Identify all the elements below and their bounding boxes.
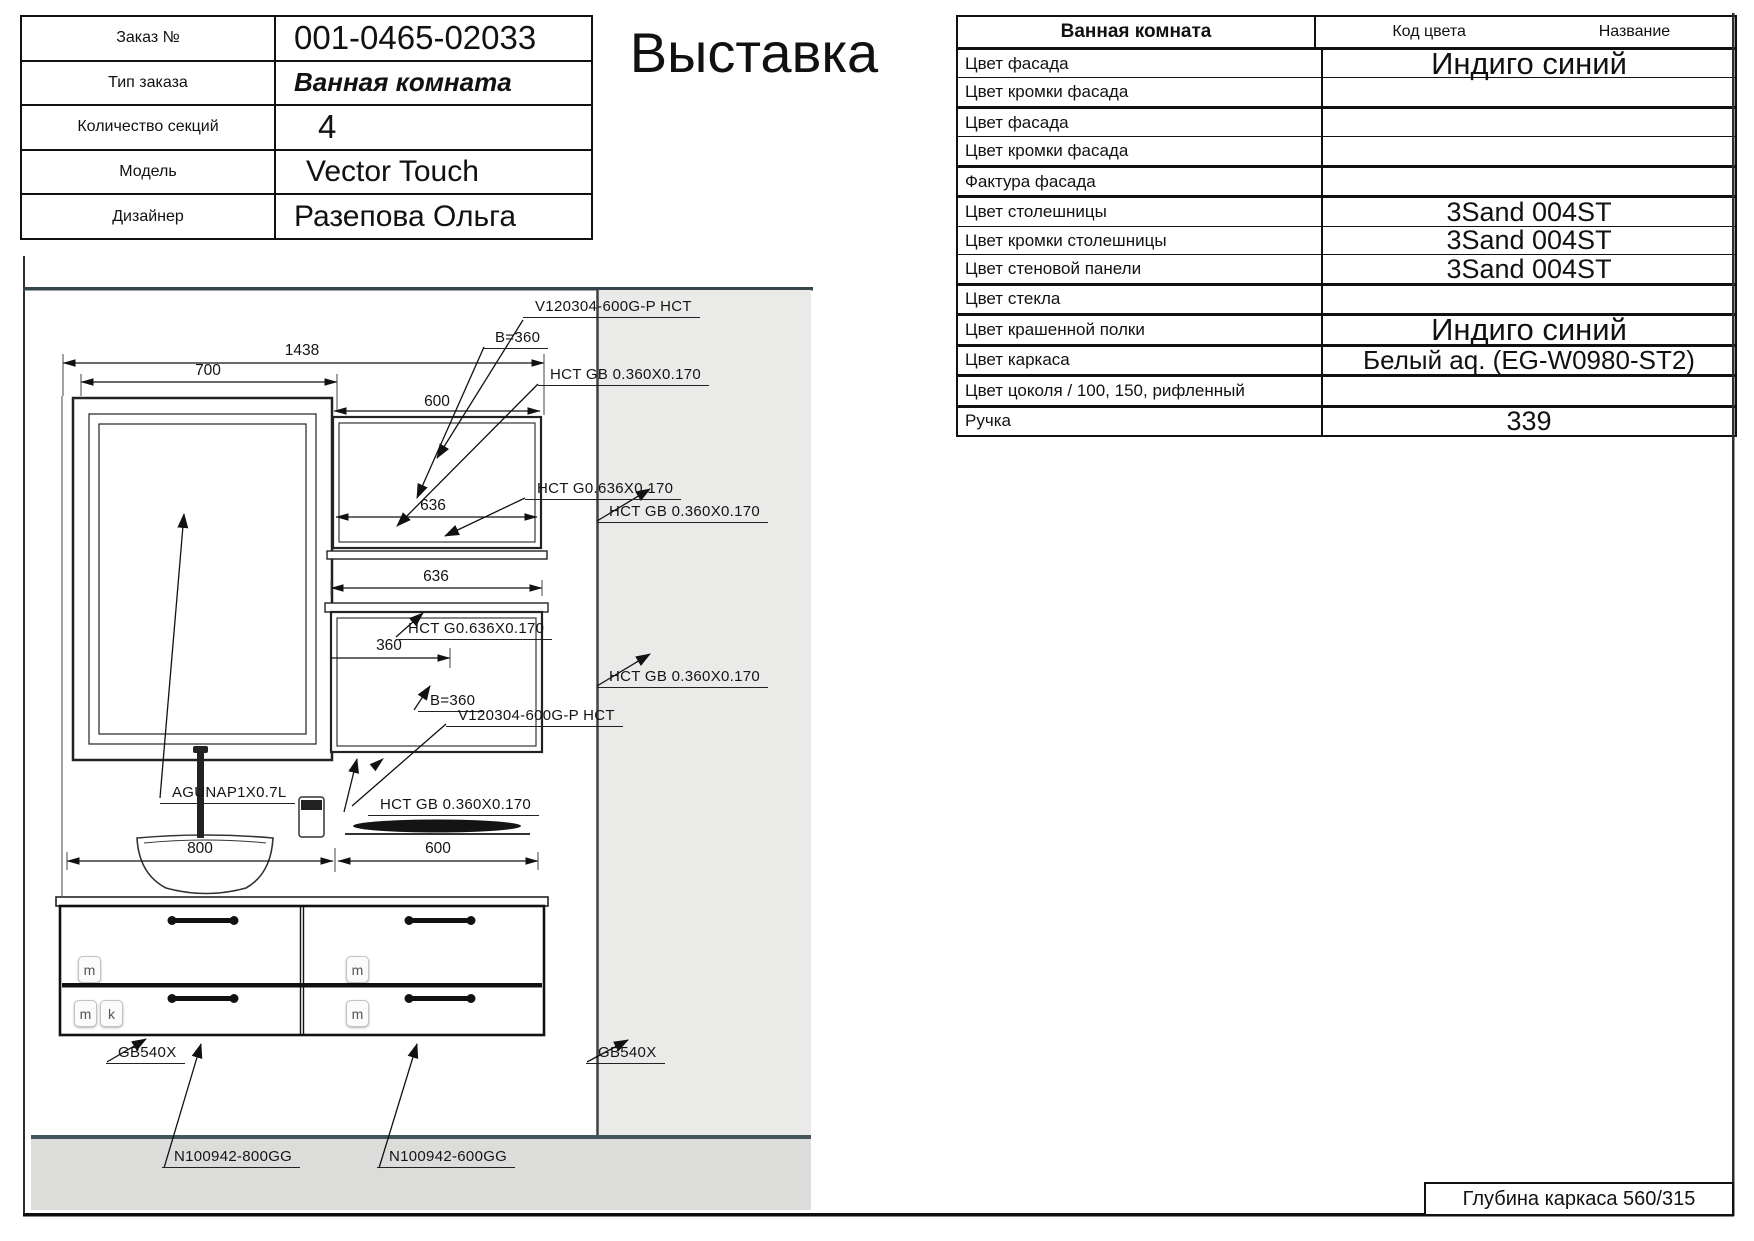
part-label-v120304-top: V120304-600G-P HCT <box>523 298 700 318</box>
drawing-linework <box>0 0 1754 1241</box>
part-label-hct-gb-wall-lower: HCT GB 0.360X0.170 <box>597 668 768 688</box>
part-label-hct-gb-top: HCT GB 0.360X0.170 <box>538 366 709 386</box>
part-label-gb540x-right: GB540X <box>586 1044 665 1064</box>
cup <box>299 797 324 837</box>
part-label-hct-gb-sink: HCT GB 0.360X0.170 <box>368 796 539 816</box>
wall-band <box>597 290 811 1137</box>
drawer-badge-m: m <box>74 1000 97 1027</box>
dim-shelf-upper: 636 <box>401 497 465 515</box>
dish <box>345 820 530 835</box>
vanity-cabinet <box>60 906 544 1035</box>
upper-cabinet <box>327 417 547 559</box>
drawer-badge-m: m <box>346 1000 369 1027</box>
part-label-hct-g636-top: HCT G0.636X0.170 <box>525 480 681 500</box>
dim-upper-cabinet-width: 600 <box>405 393 469 411</box>
part-label-faucet: AGUNAP1X0.7L <box>160 784 295 804</box>
countertop <box>56 897 548 906</box>
part-label-hct-gb-wall-upper: HCT GB 0.360X0.170 <box>597 503 768 523</box>
order-sheet: Заказ № 001-0465-02033 Тип заказа Ванная… <box>0 0 1754 1241</box>
mid-leader-arrow <box>370 758 384 771</box>
part-label-hct-g636-lower: HCT G0.636X0.170 <box>396 620 552 640</box>
drawer-handles <box>168 916 476 1003</box>
wall-top-line <box>23 287 813 291</box>
drawing-left-border <box>23 256 25 1216</box>
part-label-v120304-lower: V120304-600G-P HCT <box>446 707 623 727</box>
drawer-badge-m: m <box>346 956 369 983</box>
dim-total-width: 1438 <box>270 342 334 360</box>
dim-mirror-width: 700 <box>176 362 240 380</box>
dim-shelf-mid: 636 <box>404 568 468 586</box>
part-label-gb540x-left: GB540X <box>106 1044 185 1064</box>
part-label-b360-top: B=360 <box>483 329 548 349</box>
page-right-border <box>1732 13 1735 1216</box>
carcass-depth-note: Глубина каркаса 560/315 <box>1424 1182 1734 1216</box>
drawer-badge-k: k <box>100 1000 123 1027</box>
part-label-n100942-600: N100942-600GG <box>377 1148 515 1168</box>
dim-vanity-right: 600 <box>406 840 470 858</box>
floor-top-line <box>31 1135 811 1139</box>
mirror <box>73 398 332 760</box>
part-label-n100942-800: N100942-800GG <box>162 1148 300 1168</box>
dim-vanity-left: 800 <box>168 840 232 858</box>
drawer-badge-m: m <box>78 956 101 983</box>
